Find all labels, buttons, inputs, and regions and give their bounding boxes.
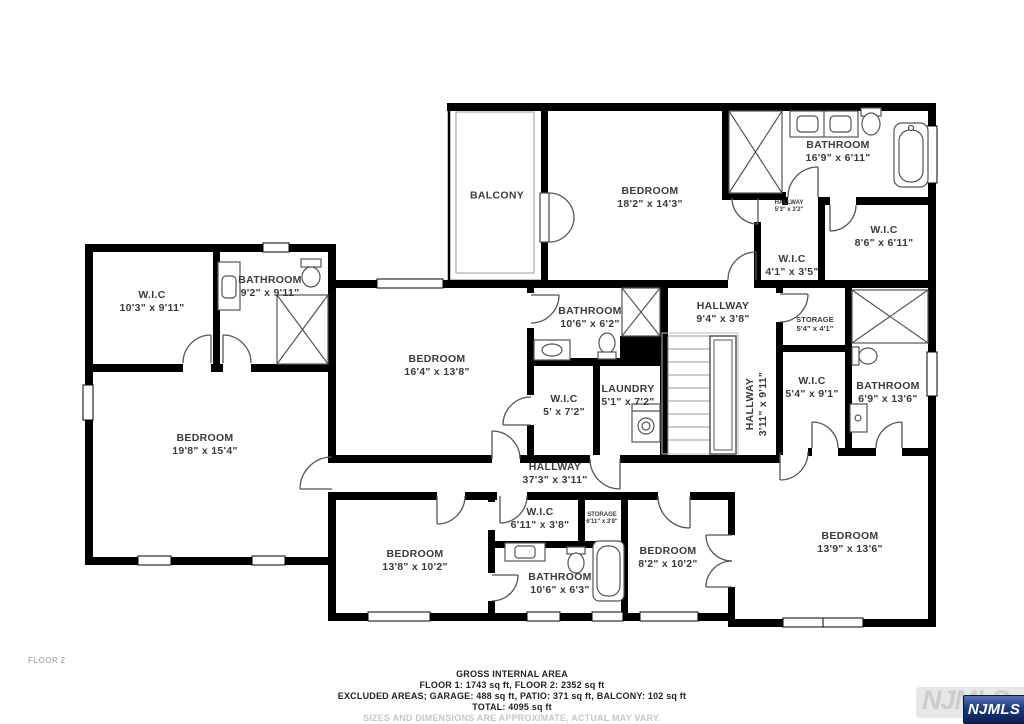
room-label-bathroom-top: BATHROOM16'9" x 6'11" [806, 139, 871, 165]
vanity-left-bathroom [218, 262, 240, 310]
fixtures [218, 108, 928, 601]
bathtub-top-right [894, 123, 928, 187]
room-label-wic-86: W.I.C8'6" x 6'11" [855, 224, 914, 250]
room-label-wic-54: W.I.C5'4" x 9'1" [785, 375, 838, 401]
room-label-laundry: LAUNDRY5'1" x 7'2" [601, 383, 654, 409]
room-label-bathroom-bottom: BATHROOM10'6" x 6'3" [528, 571, 591, 597]
room-label-hallway-94: HALLWAY9'4" x 3'8" [696, 300, 749, 326]
toilet-top-bathroom [861, 108, 881, 135]
room-label-bedroom-138: BEDROOM13'8" x 10'2" [382, 548, 448, 574]
shower-middle-bathroom [622, 288, 660, 336]
room-label-bedroom-198: BEDROOM19'8" x 15'4" [172, 432, 238, 458]
vanity-right-bathroom [850, 404, 867, 432]
room-label-wic-611: W.I.C6'11" x 3'8" [511, 506, 570, 532]
vanity-top-bathroom [790, 111, 858, 137]
shower-left-bathroom [277, 295, 328, 364]
room-label-wic-103: W.I.C10'3" x 9'11" [120, 289, 185, 315]
toilet-bottom-bathroom [567, 547, 585, 573]
footer-total: TOTAL: 4095 sq ft [0, 702, 1024, 713]
room-label-bedroom-top: BEDROOM18'2" x 14'3" [617, 185, 683, 211]
floorplan-page: BALCONY BEDROOM18'2" x 14'3" BATHROOM16'… [0, 0, 1024, 724]
room-label-hallway-vertical: HALLWAY3'11" x 9'11" [744, 372, 770, 436]
toilet-middle-bathroom [598, 333, 616, 359]
floor-tag: FLOOR 2 [28, 656, 65, 665]
room-label-balcony: BALCONY [470, 190, 524, 203]
room-label-hallway-373: HALLWAY37'3" x 3'11" [523, 461, 588, 487]
footer-summary: GROSS INTERNAL AREA FLOOR 1: 1743 sq ft,… [0, 669, 1024, 724]
toilet-left-bathroom [301, 259, 321, 287]
room-label-bathroom-69: BATHROOM6'9" x 13'6" [856, 380, 919, 406]
room-label-hallway-small: HALLWAY5'3" x 3'2" [775, 200, 804, 214]
room-label-bedroom-139: BEDROOM13'9" x 13'6" [817, 530, 883, 556]
footer-excluded-areas: EXCLUDED AREAS; GARAGE: 488 sq ft, PATIO… [0, 691, 1024, 702]
bathtub-bottom [593, 541, 624, 601]
vanity-bottom-bathroom [505, 543, 545, 561]
floorplan-svg [0, 0, 1024, 724]
njmls-logo-badge: NJMLS [963, 695, 1024, 724]
room-label-storage-54: STORAGE5'4" x 4'1" [796, 315, 834, 333]
room-label-bedroom-164: BEDROOM16'4" x 13'8" [404, 353, 470, 379]
shower-right-bathroom [852, 290, 928, 343]
room-label-wic-5: W.I.C5' x 7'2" [543, 393, 585, 419]
room-label-bedroom-82: BEDROOM8'2" x 10'2" [638, 545, 697, 571]
footer-disclaimer: SIZES AND DIMENSIONS ARE APPROXIMATE, AC… [0, 713, 1024, 724]
footer-title: GROSS INTERNAL AREA [0, 669, 1024, 680]
toilet-right-bathroom [852, 347, 877, 365]
room-label-storage-611: STORAGE6'11" x 3'8" [586, 512, 618, 526]
footer-floor-areas: FLOOR 1: 1743 sq ft, FLOOR 2: 2352 sq ft [0, 680, 1024, 691]
shower-top-right [729, 111, 782, 193]
room-label-bathroom-106: BATHROOM10'6" x 6'2" [558, 305, 621, 331]
room-label-wic-41: W.I.C4'1" x 3'5" [765, 253, 818, 279]
washer-laundry [632, 404, 660, 442]
vanity-middle-bathroom [534, 340, 570, 360]
room-label-bathroom-92: BATHROOM9'2" x 9'11" [238, 274, 301, 300]
staircase [662, 333, 738, 454]
